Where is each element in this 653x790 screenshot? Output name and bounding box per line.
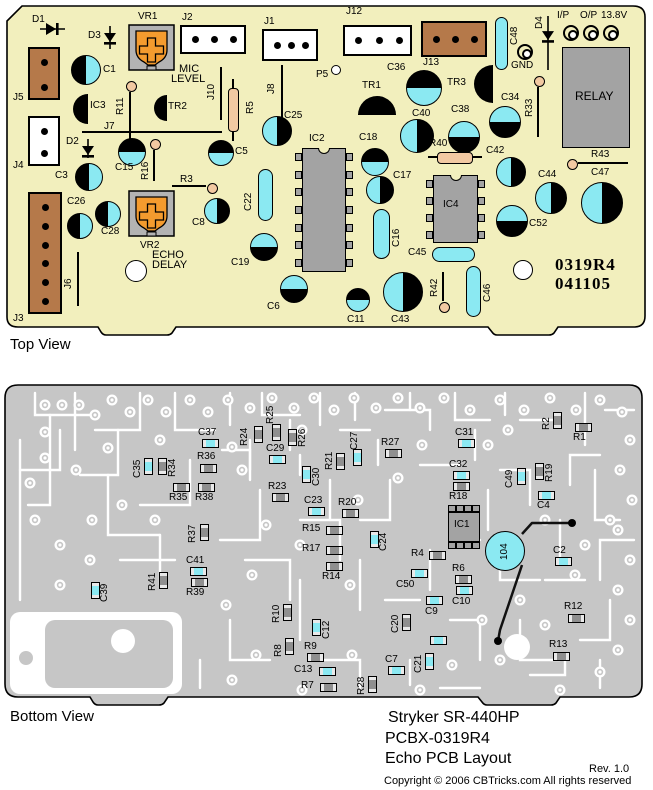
pad-center [522,49,532,59]
label-j8: J8 [267,83,277,94]
label-r14: R14 [322,572,340,582]
label-j1: J1 [264,17,275,27]
connector-j5 [28,47,60,100]
ic-pin [295,206,302,214]
connector-j2 [180,25,246,54]
label-c36: C36 [387,63,405,73]
capacitor-c26 [67,213,93,239]
connector-pin [42,260,49,267]
connector-pin [42,279,49,286]
smd-resistor-r6 [455,575,472,584]
label-relay: RELAY [575,90,613,102]
label-c13: C13 [294,665,312,675]
footer-layout-title: Echo PCB Layout [385,750,511,768]
capacitor-c22 [258,169,273,221]
pcb-layout-page: D1D3D2D4 VR1 VR2J2J1J12J13J5J4J3C1C3C26C… [0,0,653,790]
pad-gnd [517,44,533,60]
label-i-p: I/P [557,11,569,21]
smd-capacitor-c37 [202,439,219,448]
pad-p5 [331,65,341,75]
connector-pin [433,36,440,43]
resistor-lead [172,185,206,187]
connector-j3 [28,192,62,314]
ic-pin [295,259,302,267]
label-r10: R10 [272,605,282,623]
smd-resistor-r21 [336,453,345,470]
label-r9: R9 [304,642,317,652]
ic-pin [448,505,456,512]
connector-pin [42,204,49,211]
transistor-ic3 [73,94,88,124]
label-j2: J2 [182,13,193,23]
ic-pin [295,171,302,179]
label-r40: R40 [429,139,447,149]
label-c27: C27 [350,432,360,450]
capacitor-c36 [406,70,442,106]
label-r7: R7 [301,681,314,691]
label-r11: R11 [116,97,126,115]
pad-i-p [563,25,579,41]
label-c34: C34 [501,93,519,103]
jumper-j8 [281,65,283,119]
label-c37: C37 [198,428,216,438]
capacitor-c19 [250,233,278,261]
capacitor-c44 [535,182,567,214]
label-c9: C9 [425,607,438,617]
label-c22: C22 [244,193,254,211]
ic-pin [456,505,464,512]
smd-capacitor-c27 [353,449,362,466]
smd-capacitor-part [430,636,447,645]
label-r13: R13 [549,640,567,650]
label-r6: R6 [452,564,465,574]
ic-pin [295,224,302,232]
label-c20: C20 [391,615,401,633]
connector-pin [42,242,49,249]
connector-pin [471,36,478,43]
ic-pin [448,542,456,549]
label-r36: R36 [197,452,215,462]
ic-pin [346,259,353,267]
label-r12: R12 [564,602,582,612]
label-c3: C3 [55,171,68,181]
label-c30: C30 [312,468,322,486]
label-delay: DELAY [152,260,187,271]
smd-resistor-r39 [191,578,208,587]
label-c31: C31 [455,428,473,438]
smd-resistor-r41 [159,572,168,589]
ic-pin [426,231,433,239]
label-r4: R4 [411,549,424,559]
smd-resistor-r23 [272,493,289,502]
top-view-label: Top View [10,336,71,353]
smd-capacitor-c2 [555,557,572,566]
label-p5: P5 [316,70,328,80]
ic-pin [478,197,485,205]
connector-pin [41,59,48,66]
smd-capacitor-c49 [517,468,526,485]
label-r16: R16 [141,162,151,180]
smd-resistor-r13 [553,652,570,661]
label-c41: C41 [186,556,204,566]
capacitor-c45 [432,247,475,262]
connector-j13 [421,21,487,57]
label-c32: C32 [449,460,467,470]
smd-resistor-r15 [326,526,343,535]
ic-pin [346,224,353,232]
capacitor-c34 [489,106,521,138]
label-c24: C24 [379,533,389,551]
resistor-r3 [207,183,218,194]
label-r43: R43 [591,150,609,160]
ic-pin [478,180,485,188]
smd-capacitor-c4 [538,491,555,500]
label-c2: C2 [553,546,566,556]
pad-center [568,30,578,40]
label-c25: C25 [284,111,302,121]
label-c45: C45 [408,248,426,258]
smd-resistor-r9 [307,653,324,662]
capacitor-c48 [495,17,508,70]
connector-pin [41,150,48,157]
transistor-tr3 [474,65,493,103]
connector-pin [41,84,48,91]
resistor-lead [537,87,539,137]
label-r33: R33 [525,99,535,117]
label-c26: C26 [67,197,85,207]
smd-capacitor-c35 [144,458,153,475]
label-r26: R26 [298,429,308,447]
smd-capacitor-c29 [269,455,286,464]
label-c1: C1 [103,65,116,75]
label-c35: C35 [133,460,143,478]
resistor-r11 [126,81,137,92]
pad-o-p [583,25,599,41]
bottom-view-label: Bottom View [10,708,94,725]
ic-pin [478,231,485,239]
jumper-j7 [82,131,222,133]
label-d1: D1 [32,15,45,25]
label-r8: R8 [274,644,284,657]
smd-capacitor-c10 [456,586,473,595]
label-tr3: TR3 [447,78,466,88]
label-j7: J7 [104,122,115,132]
label-gnd: GND [511,61,533,71]
smd-resistor-r10 [283,604,292,621]
resistor-r42 [439,302,450,313]
connector-pin [211,36,218,43]
footer-copyright: Copyright © 2006 CBTricks.com All rights… [384,775,631,787]
label-r20: R20 [338,498,356,508]
label-104: 104 [500,543,510,560]
label-c50: C50 [396,580,414,590]
smd-resistor-r4 [429,551,446,560]
jumper-j10 [220,67,222,120]
connector-pin [230,36,237,43]
label-r18: R18 [449,492,467,502]
smd-resistor-r1 [575,423,592,432]
capacitor-c18 [361,148,389,176]
ic-ic2 [302,148,346,272]
label-c21: C21 [414,655,424,673]
smd-resistor-r34 [158,458,167,475]
label-j10: J10 [207,84,217,100]
resistor-lead [129,92,131,142]
capacitor-c38 [448,121,480,153]
label-c47: C47 [591,168,609,178]
ic-pin [295,153,302,161]
smd-capacitor-c12 [312,619,321,636]
smd-resistor-r28 [368,676,377,693]
label-vr1: VR1 [138,12,157,22]
label-c8: C8 [192,218,205,228]
label-ic3: IC3 [90,101,106,111]
capacitor-c11 [346,288,370,312]
smd-resistor-r37 [200,524,209,541]
smd-resistor-r17 [326,546,343,555]
connector-pin [376,37,383,44]
label-r25: R25 [266,406,276,424]
label-c4: C4 [537,501,550,511]
smd-resistor-r27 [385,449,402,458]
label-c17: C17 [393,171,411,181]
connector-j12 [343,25,412,56]
connector-pin [42,298,49,305]
label-c40: C40 [412,109,430,119]
label-c10: C10 [452,597,470,607]
smd-resistor-r14 [326,562,343,571]
capacitor-c47 [581,182,623,224]
components-layer: D1D3D2D4 VR1 VR2J2J1J12J13J5J4J3C1C3C26C… [0,0,653,790]
pad-center [588,30,598,40]
label-r17: R17 [302,544,320,554]
smd-resistor-r20 [342,509,359,518]
ic-pin [346,206,353,214]
label-o-p: O/P [580,11,597,21]
label-d3: D3 [88,31,101,41]
connector-pin [274,42,281,49]
label-c7: C7 [385,655,398,665]
ic-pin [346,153,353,161]
ic-pin [426,180,433,188]
resistor-lead [578,162,628,164]
connector-pin [396,37,403,44]
capacitor-c43 [383,272,423,312]
ic-pin [426,214,433,222]
label-j12: J12 [346,7,362,17]
label-c48: C48 [510,27,520,45]
resistor-r43 [567,159,578,170]
resistor-r5 [228,88,239,132]
label-tr1: TR1 [362,81,381,91]
smd-capacitor-c41 [190,567,207,576]
label-j6: J6 [64,278,74,289]
capacitor-c17 [366,176,394,204]
label-r34: R34 [168,459,178,477]
pad-13.8v [603,25,619,41]
resistor-r16 [150,139,161,150]
label-d4: D4 [535,16,545,29]
label-c38: C38 [451,105,469,115]
label-j4: J4 [13,161,24,171]
smd-resistor-r25 [272,424,281,441]
ic-pin [472,505,480,512]
connector-pin [42,223,49,230]
label-ic1: IC1 [454,520,470,530]
ic-pin [346,188,353,196]
label-c28: C28 [101,227,119,237]
jumper-j6 [77,252,79,306]
ic-pin [346,241,353,249]
connector-pin [452,36,459,43]
smd-resistor-c20 [402,614,411,631]
label-0319r4: 0319R4 [555,256,616,273]
hole [513,260,533,280]
smd-resistor-r35 [173,483,190,492]
label-c29: C29 [266,444,284,454]
label-ic4: IC4 [443,200,459,210]
label-r38: R38 [195,493,213,503]
label-c39: C39 [100,584,110,602]
smd-resistor-r24 [254,426,263,443]
resistor-lead [473,156,482,158]
ic-pin [346,171,353,179]
smd-capacitor-c31 [458,439,475,448]
smd-capacitor-c30 [302,466,311,483]
label-c43: C43 [391,315,409,325]
connector-j4 [28,116,60,166]
ic-pin [464,505,472,512]
connector-j1 [262,29,318,61]
label-c15: C15 [115,163,133,173]
resistor-lead [232,79,234,88]
smd-resistor-r26 [288,429,297,446]
pad-center [608,30,618,40]
footer-pcb-number: PCBX-0319R4 [385,730,490,748]
capacitor-c16 [373,209,390,259]
resistor-lead [428,156,437,158]
smd-resistor-r36 [200,464,217,473]
label-c23: C23 [304,496,322,506]
label-c16: C16 [392,229,402,247]
label-13.8v: 13.8V [601,11,627,21]
ic-pin [295,188,302,196]
connector-pin [41,128,48,135]
smd-resistor-r18 [453,482,470,491]
capacitor-c3 [75,163,103,191]
label-r1: R1 [573,433,586,443]
smd-resistor-r19 [535,463,544,480]
label-c42: C42 [486,146,504,156]
capacitor-c6 [280,275,308,303]
label-041105: 041105 [555,275,611,292]
ic-pin [295,241,302,249]
label-r5: R5 [246,101,256,114]
label-r42: R42 [430,279,440,297]
label-r28: R28 [357,677,367,695]
smd-resistor-r8 [285,638,294,655]
smd-resistor-r12 [568,614,585,623]
ic-pin [464,542,472,549]
ic-pin [472,542,480,549]
resistor-lead [442,272,444,301]
connector-pin [288,42,295,49]
resistor-lead [153,150,155,181]
label-tr2: TR2 [168,102,187,112]
label-j5: J5 [13,93,24,103]
label-r37: R37 [188,525,198,543]
label-c18: C18 [359,133,377,143]
connector-pin [192,36,199,43]
smd-capacitor-c9 [426,596,443,605]
hole [125,260,147,282]
label-r15: R15 [302,524,320,534]
connector-pin [355,37,362,44]
capacitor-c46 [466,266,481,317]
label-r35: R35 [169,493,187,503]
resistor-r40 [437,152,473,164]
label-c12: C12 [322,621,332,639]
transistor-tr2 [154,95,167,121]
label-c49: C49 [505,470,515,488]
label-r41: R41 [148,573,158,591]
smd-capacitor-c50 [411,569,428,578]
connector-pin [302,42,309,49]
smd-capacitor-c21 [425,653,434,670]
label-r27: R27 [381,438,399,448]
label-j3: J3 [13,314,24,324]
capacitor-c8 [204,198,230,224]
capacitor-c1 [71,55,101,85]
ic-pin [478,214,485,222]
smd-capacitor-c7 [388,666,405,675]
ic-pin [456,542,464,549]
smd-capacitor-c13 [319,667,336,676]
smd-resistor-r38 [198,483,215,492]
label-r2: R2 [542,417,552,430]
capacitor-c42 [496,157,526,187]
smd-capacitor-c23 [308,507,325,516]
label-level: LEVEL [171,74,205,85]
label-r21: R21 [325,452,335,470]
label-r3: R3 [180,175,193,185]
label-d2: D2 [66,137,79,147]
trimmer-vr1 [128,24,175,71]
capacitor-c5 [208,140,234,166]
label-j13: J13 [423,58,439,68]
smd-resistor-r2 [553,412,562,429]
smd-capacitor-c32 [453,471,470,480]
label-r39: R39 [186,588,204,598]
label-r23: R23 [268,482,286,492]
capacitor-c52 [496,205,528,237]
footer-model: Stryker SR-440HP [388,709,520,727]
label-r24: R24 [240,428,250,446]
resistor-lead [232,132,234,141]
capacitor-c28 [95,201,121,227]
label-c6: C6 [267,302,280,312]
ic-pin [426,197,433,205]
transistor-tr1 [358,96,396,115]
smd-resistor-r7 [320,683,337,692]
resistor-r33 [534,76,545,87]
label-ic2: IC2 [309,134,325,144]
label-c19: C19 [231,258,249,268]
label-c5: C5 [235,147,248,157]
label-c52: C52 [529,219,547,229]
trimmer-vr2 [128,190,175,237]
footer-revision: Rev. 1.0 [589,763,629,775]
